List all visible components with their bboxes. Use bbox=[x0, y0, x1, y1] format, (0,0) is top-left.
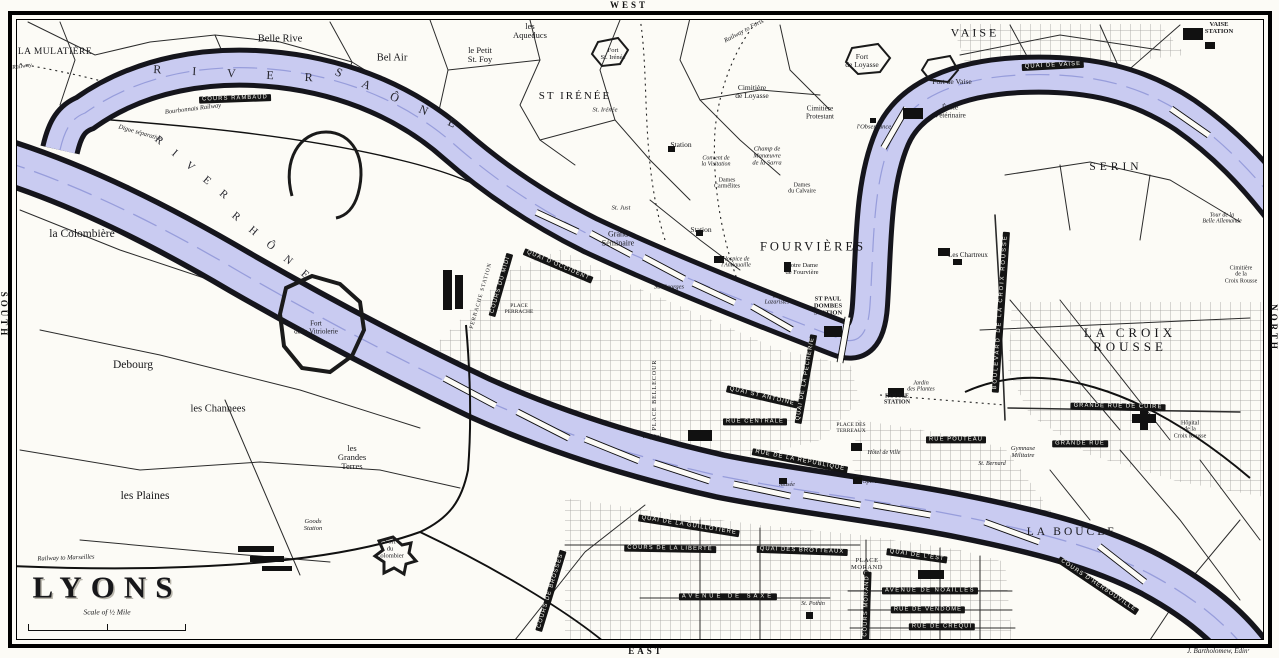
compass-north: NORTH bbox=[1269, 304, 1279, 352]
map-canvas bbox=[0, 0, 1279, 658]
compass-south: SOUTH bbox=[0, 292, 9, 339]
map-root: RailwayLA MULATIÈREBelle RiveBel Airle P… bbox=[0, 0, 1279, 658]
compass-east: EAST bbox=[628, 646, 664, 656]
attribution: J. Bartholomew, Edinʳ bbox=[1187, 647, 1249, 655]
scale-caption: Scale of ½ Mile bbox=[33, 608, 182, 617]
scale-bar bbox=[28, 624, 186, 631]
map-title: LYONS bbox=[33, 570, 182, 606]
title-block: LYONS Scale of ½ Mile bbox=[33, 570, 182, 617]
compass-west: WEST bbox=[610, 0, 648, 10]
